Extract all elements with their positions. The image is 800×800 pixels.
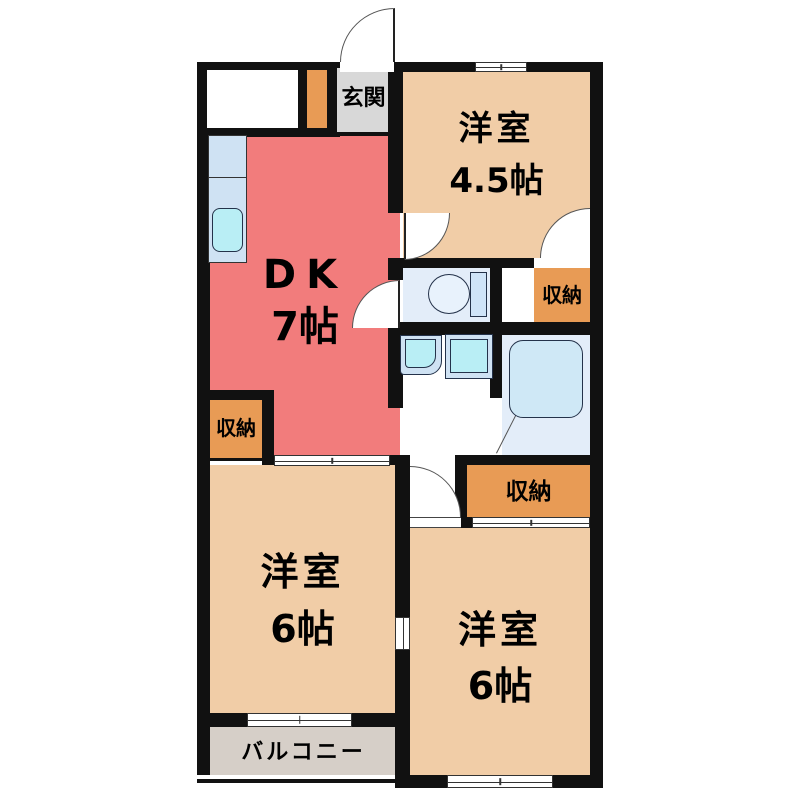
entrance-label: 玄関: [337, 84, 390, 114]
floor-plan: 玄関 洋室 4.5帖 DK 7帖 収納 収納 収納 洋室 6帖 洋室 6帖 バル…: [0, 0, 800, 800]
pipe-space-box: [207, 70, 298, 128]
closet-door-gap: [534, 258, 590, 268]
room6-right-name: 洋室: [410, 604, 590, 656]
washbasin-bowl: [405, 339, 436, 368]
dk-size: 7帖: [210, 302, 400, 352]
balcony-window-left-room: [247, 713, 352, 727]
wall-right: [590, 62, 603, 788]
window-right-room: [447, 775, 553, 788]
bathtub: [509, 340, 583, 418]
wall-dk-right-a: [388, 62, 403, 213]
sliding-door-storage-room: [472, 517, 590, 528]
room6-right-size: 6帖: [410, 660, 590, 712]
wall-below-toilet-row: [388, 322, 603, 335]
room45-name: 洋室: [403, 106, 590, 152]
room6-left-name: 洋室: [210, 545, 395, 599]
divider-window: [395, 617, 410, 650]
storage-label-dk: 収納: [210, 413, 262, 443]
wall-storage-dk-right: [262, 390, 274, 465]
storage-label-bottom: 収納: [467, 476, 590, 508]
wall-room-divider-a: [395, 460, 410, 617]
sliding-door-dk-room6: [274, 455, 390, 466]
wall-above-storage-bottom: [455, 455, 603, 465]
kitchen-sink: [212, 208, 243, 252]
room6-left-size: 6帖: [210, 602, 395, 656]
room45-size: 4.5帖: [403, 158, 590, 204]
storage-label-top-right: 収納: [534, 280, 590, 310]
dk-name: DK: [210, 250, 400, 300]
balcony-label: バルコニー: [210, 738, 397, 768]
toilet-tank: [470, 272, 487, 317]
kitchen-counter-divider: [208, 177, 247, 178]
shoe-cabinet: [307, 70, 327, 128]
entrance-door-arc: [340, 8, 395, 62]
hall-door-leaf: [410, 517, 461, 528]
hall-door-arc: [410, 466, 461, 517]
balcony-edge-line: [197, 779, 400, 783]
wall-stub-under-storage: [461, 517, 472, 528]
toilet-bowl: [428, 274, 470, 314]
washing-machine-pan-inner: [450, 339, 488, 373]
window-room45-top: [475, 62, 527, 72]
wall-toilet-right: [490, 268, 502, 322]
